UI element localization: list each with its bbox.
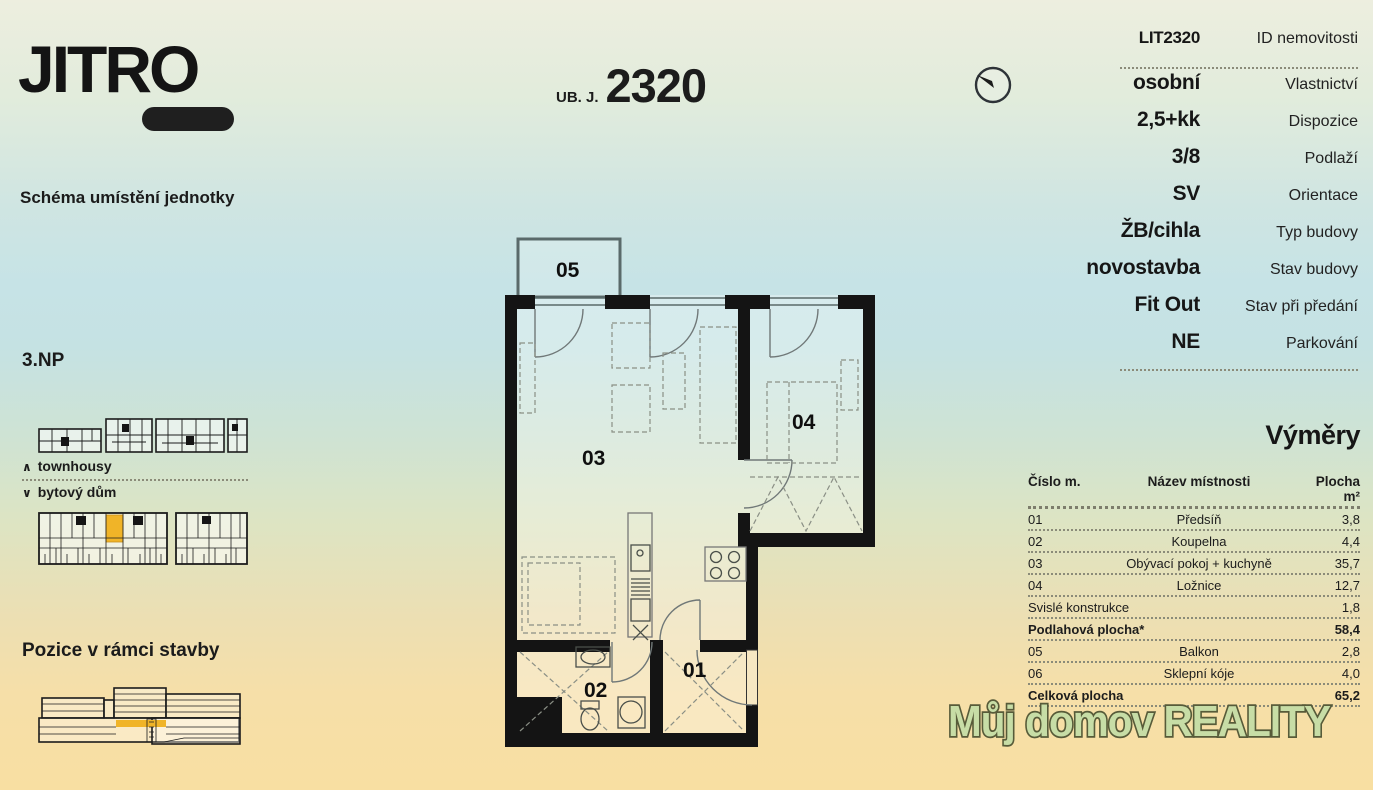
detail-row: 3/8Podlaží [1028,145,1358,182]
unit-card-page: JITRO Schéma umístění jednotky 3.NP ∧tow… [0,0,1373,790]
jitro-logo: JITRO [18,36,197,102]
detail-row: Fit OutStav při předání [1028,293,1358,330]
position-title: Pozice v rámci stavby [22,640,220,662]
scheme-title: Schéma umístění jednotky [20,188,234,208]
watermark: Můj domov REALITY [942,690,1337,752]
jitro-logo-text: JITRO [18,32,197,106]
areas-title: Výměry [1028,420,1360,451]
townhouse-floorplates-diagram [36,412,250,456]
detail-row: SVOrientace [1028,182,1358,219]
areas-table-header: Číslo m. Název místnosti Plocha m² [1028,471,1360,509]
floorplan-drawing: 05 03 04 01 02 [500,235,880,755]
jitro-logo-pill [142,107,234,131]
detail-row: novostavbaStav budovy [1028,256,1358,293]
details-divider [1120,67,1358,69]
legend-townhouses: ∧townhousy [22,458,112,474]
room-label-04: 04 [792,411,816,434]
watermark-text: Můj domov REALITY [948,697,1331,746]
details-divider [1120,369,1358,371]
chevron-down-icon: ∨ [22,486,32,500]
table-row: 03Obývací pokoj + kuchyně35,7 [1028,553,1360,575]
detail-row: LIT2320ID nemovitosti [1028,28,1358,65]
detail-row: 2,5+kkDispozice [1028,108,1358,145]
detail-row: osobníVlastnictví [1028,71,1358,108]
floor-label: 3.NP [22,350,64,372]
table-row: Svislé konstrukce1,8 [1028,597,1360,619]
highlighted-floor [116,720,166,727]
table-row-total-floor: Podlahová plocha*58,4 [1028,619,1360,641]
room-label-01: 01 [683,659,707,682]
building-elevation-diagram [34,686,248,758]
property-details: LIT2320ID nemovitosti osobníVlastnictví … [1028,28,1358,373]
building-floorplates-diagram [36,508,250,570]
chevron-up-icon: ∧ [22,460,32,474]
table-row: 05Balkon2,8 [1028,641,1360,663]
compass-icon [972,64,1014,106]
table-row: 04Ložnice12,7 [1028,575,1360,597]
table-row: 06Sklepní kóje4,0 [1028,663,1360,685]
legend-apartment-building: ∨bytový dům [22,484,116,500]
table-row: 02Koupelna4,4 [1028,531,1360,553]
detail-row: NEParkování [1028,330,1358,367]
room-label-02: 02 [584,679,607,702]
table-row: 01Předsíň3,8 [1028,509,1360,531]
unit-header: UB. J. 2320 [556,58,706,113]
room-label-03: 03 [582,447,605,470]
areas-table: Výměry Číslo m. Název místnosti Plocha m… [1028,420,1360,707]
legend-divider [22,479,248,481]
detail-row: ŽB/cihlaTyp budovy [1028,219,1358,256]
room-label-05: 05 [556,259,580,282]
unit-number: 2320 [606,58,707,113]
unit-prefix: UB. J. [556,89,599,106]
